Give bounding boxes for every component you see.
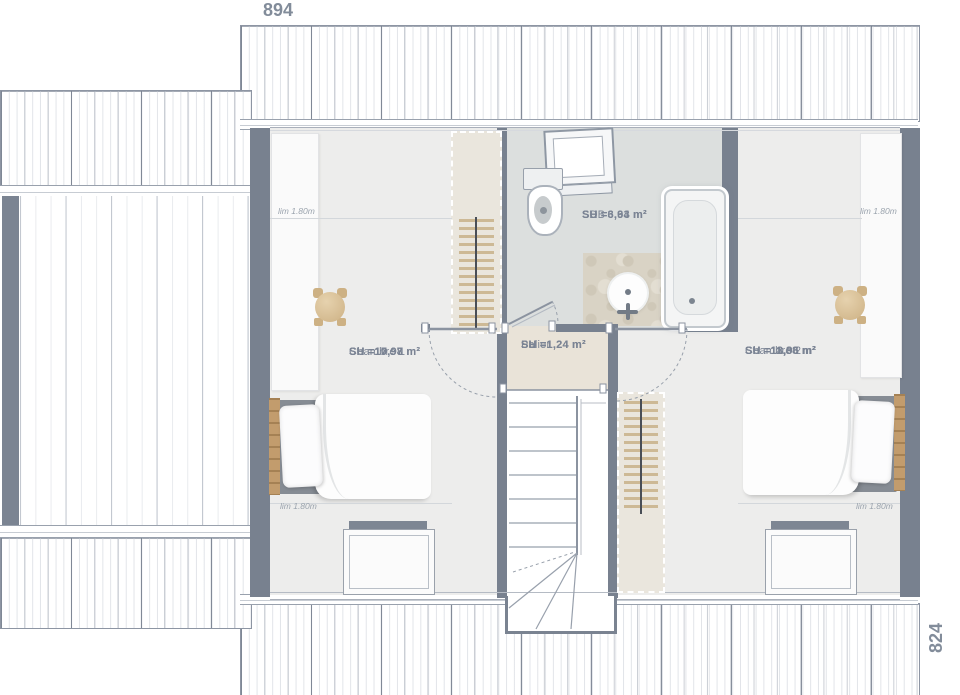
height-limit-label: lim 1.80m xyxy=(856,501,893,511)
height-limit-line xyxy=(270,218,452,219)
bathtub-drain xyxy=(689,298,695,304)
landing-floor xyxy=(507,326,609,390)
bed-duvet xyxy=(743,390,859,495)
roof-tiles-left-bottom xyxy=(0,537,252,629)
height-limit-label: lim 1.80m xyxy=(278,206,315,216)
bed-chambre1 xyxy=(269,393,432,501)
bed-duvet xyxy=(315,394,431,499)
chair-seat xyxy=(835,290,865,320)
radiator-chambre1 xyxy=(349,521,427,529)
dimension-width: 894 xyxy=(263,0,293,21)
stairwell-floor xyxy=(507,390,609,596)
closet-chambre1 xyxy=(451,131,502,334)
wall-left-gable xyxy=(250,128,270,597)
roof-tiles-top xyxy=(240,25,920,122)
room-surface-sh: SH =1,24 m² xyxy=(521,337,586,354)
wall-stub-chambre1-door xyxy=(421,324,430,332)
room-surface-sh: SH =3,64 m² xyxy=(582,207,647,224)
terrace-edge-wall xyxy=(2,196,19,525)
washbasin-tap-bar xyxy=(617,310,638,314)
closet-rod xyxy=(640,399,642,514)
bed-chambre2 xyxy=(744,389,905,499)
armchair-chambre1 xyxy=(313,288,347,326)
desk-chambre1 xyxy=(343,529,435,595)
gutter-left-bottom xyxy=(0,525,250,538)
armchair-chambre2 xyxy=(833,286,867,324)
wardrobe-chambre1 xyxy=(271,133,319,391)
bed-pillow xyxy=(851,400,895,484)
height-limit-label: lim 1.80m xyxy=(280,501,317,511)
height-limit-label: lim 1.80m xyxy=(860,206,897,216)
bed-headboard xyxy=(894,394,905,491)
wardrobe-chambre2 xyxy=(860,133,902,378)
closet-rod xyxy=(475,217,477,329)
chair-seat xyxy=(315,292,345,322)
wall-stub-landing-top xyxy=(556,324,610,332)
terrace-decking xyxy=(0,196,250,525)
bathtub xyxy=(664,189,726,328)
floor-plan: Chambre 1 SU =17,97 m² SH =10,98 m² SDB … xyxy=(0,0,960,695)
dimension-height: 824 xyxy=(926,601,947,653)
stair-enclosure-bottom xyxy=(505,596,617,634)
wall-right-gable xyxy=(900,128,920,597)
desk-chambre2 xyxy=(765,529,857,595)
closet-chambre2 xyxy=(617,392,665,593)
room-surface-sh: SH =10,98 m² xyxy=(349,344,420,361)
toilet-bowl xyxy=(527,185,563,236)
bed-pillow xyxy=(279,404,323,488)
radiator-chambre2 xyxy=(771,521,849,529)
room-surface-sh: SH =11,88 m² xyxy=(745,343,816,360)
roof-tiles-left-top xyxy=(0,90,252,188)
height-limit-line xyxy=(738,218,862,219)
